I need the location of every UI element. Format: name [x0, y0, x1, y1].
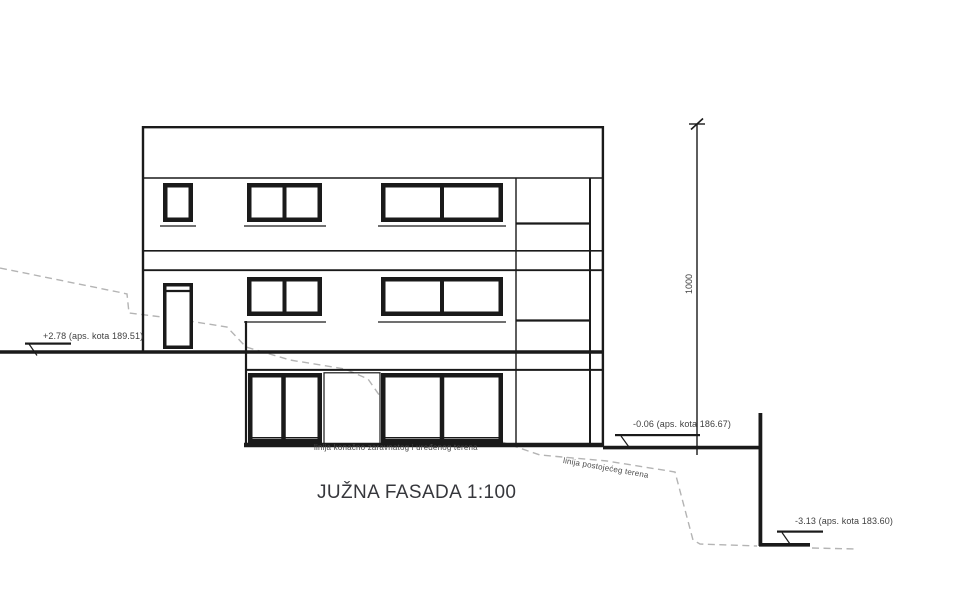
middle-floor-openings: [165, 279, 506, 347]
elevation-marker-lower-right: -3.13 (aps. kota 183.60): [795, 516, 893, 526]
window-top-small: [165, 185, 191, 220]
elevation-marker-ground-right: -0.06 (aps. kota 186.67): [633, 419, 731, 429]
ground-terrace-lines: [603, 413, 810, 546]
top-floor-windows: [160, 185, 506, 226]
facade-drawing-svg: [0, 0, 971, 600]
ground-floor-openings: [250, 373, 501, 444]
elevation-marker-upper-left: +2.78 (aps. kota 189.51): [43, 331, 143, 341]
balcony-bay: [516, 178, 590, 445]
drawing-title: JUŽNA FASADA 1:100: [317, 482, 516, 504]
dimension-label-1000: 1000: [684, 254, 694, 314]
building-outline: [142, 126, 604, 447]
finished-terrain-label: linija konačno zaravnatog i uređenog ter…: [314, 443, 478, 452]
door-middle-floor: [165, 285, 192, 348]
elevation-drawing: +2.78 (aps. kota 189.51) -0.06 (aps. kot…: [0, 0, 971, 600]
